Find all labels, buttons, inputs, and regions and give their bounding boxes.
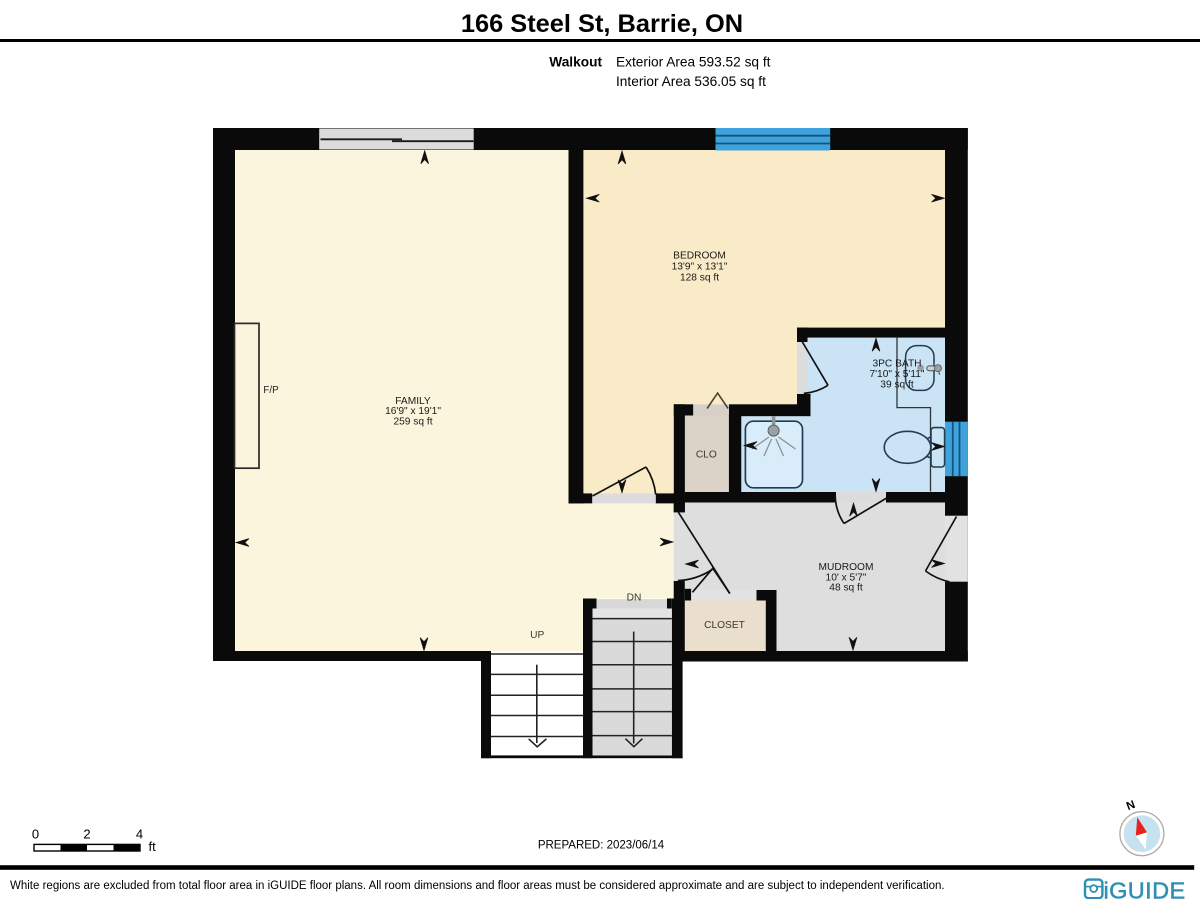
svg-text:166 Steel St, Barrie, ON: 166 Steel St, Barrie, ON	[461, 10, 743, 38]
svg-text:2: 2	[83, 827, 90, 842]
svg-text:Walkout: Walkout	[549, 54, 602, 69]
svg-text:F/P: F/P	[263, 385, 279, 396]
svg-text:White regions are excluded fro: White regions are excluded from total fl…	[10, 880, 945, 892]
svg-text:4: 4	[136, 827, 143, 842]
svg-text:BEDROOM: BEDROOM	[673, 251, 726, 262]
svg-text:7'10" x 5'11": 7'10" x 5'11"	[869, 369, 924, 380]
svg-text:0: 0	[32, 827, 39, 842]
svg-text:3PC BATH: 3PC BATH	[872, 359, 921, 370]
svg-text:Interior Area 536.05 sq ft: Interior Area 536.05 sq ft	[616, 74, 766, 89]
svg-text:CLOSET: CLOSET	[704, 620, 745, 631]
svg-text:ft: ft	[149, 839, 157, 854]
svg-text:PREPARED: 2023/06/14: PREPARED: 2023/06/14	[538, 840, 665, 852]
svg-text:13'9" x 13'1": 13'9" x 13'1"	[672, 262, 728, 273]
svg-text:iGUIDE: iGUIDE	[1104, 878, 1186, 899]
svg-text:UP: UP	[530, 630, 544, 641]
svg-text:CLO: CLO	[696, 450, 717, 461]
svg-text:39 sq ft: 39 sq ft	[880, 379, 914, 390]
svg-text:Exterior Area 593.52 sq ft: Exterior Area 593.52 sq ft	[616, 54, 771, 69]
svg-text:DN: DN	[627, 592, 642, 603]
svg-text:259 sq ft: 259 sq ft	[393, 416, 432, 427]
svg-text:48 sq ft: 48 sq ft	[829, 582, 863, 593]
svg-text:128 sq ft: 128 sq ft	[680, 273, 719, 284]
